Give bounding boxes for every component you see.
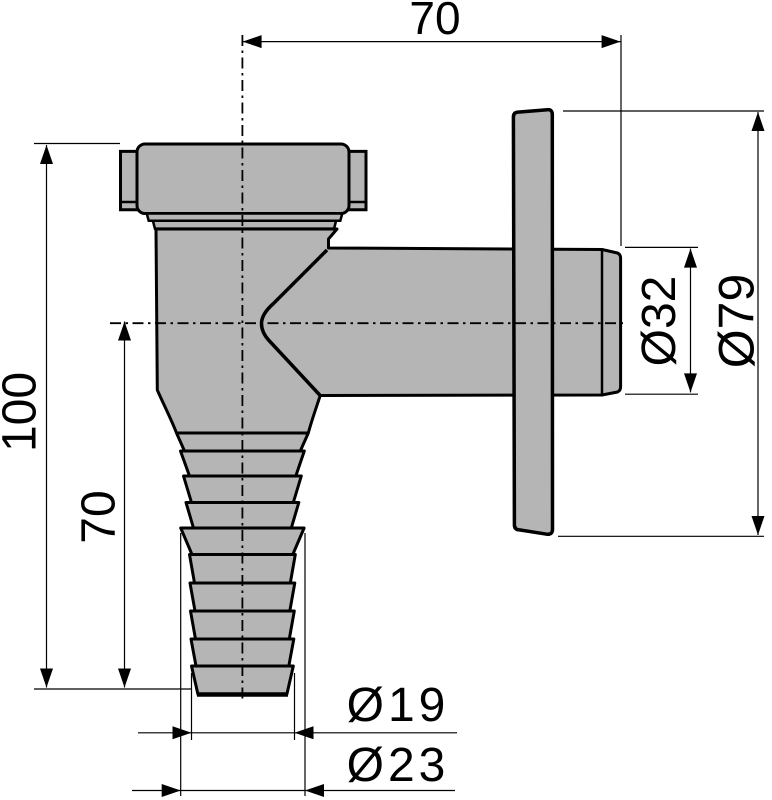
svg-text:Ø19: Ø19 bbox=[347, 679, 450, 732]
svg-text:70: 70 bbox=[73, 490, 126, 543]
svg-text:100: 100 bbox=[0, 372, 47, 452]
svg-text:Ø23: Ø23 bbox=[347, 739, 450, 792]
svg-text:Ø79: Ø79 bbox=[709, 274, 765, 369]
svg-text:70: 70 bbox=[409, 0, 460, 44]
svg-text:Ø32: Ø32 bbox=[633, 276, 686, 367]
